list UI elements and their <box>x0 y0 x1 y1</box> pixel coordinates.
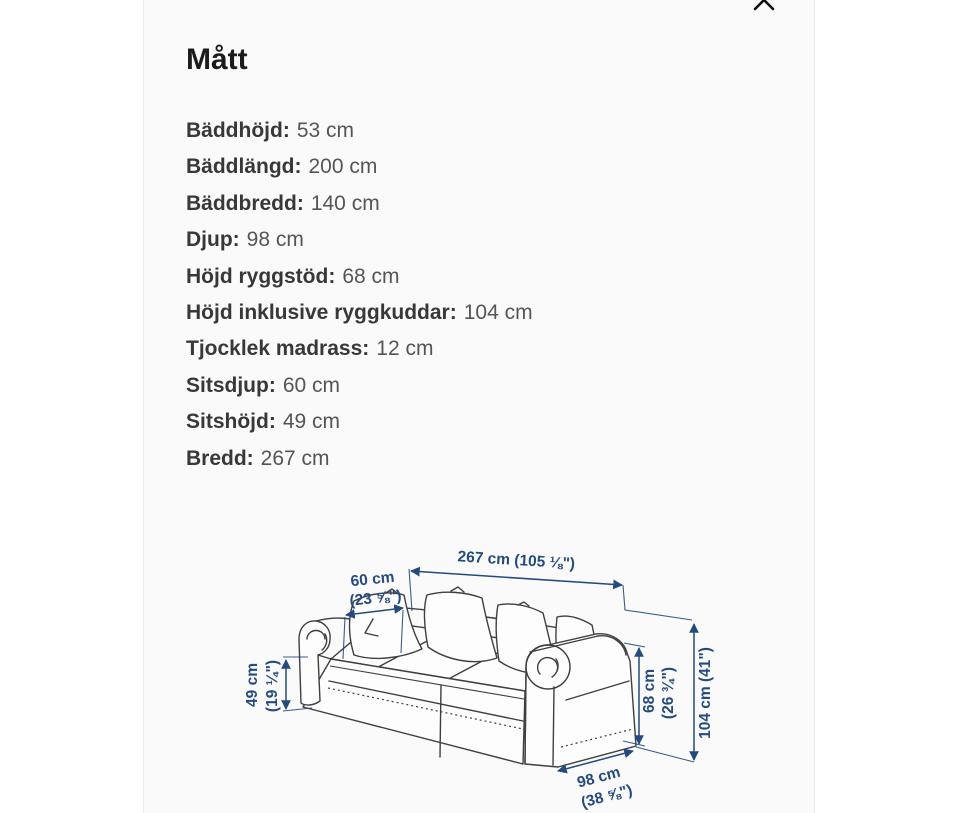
measurement-value: 200 cm <box>309 155 378 178</box>
measurement-row: Bäddhöjd:53 cm <box>186 113 746 149</box>
measurement-label: Bäddlängd: <box>186 155 302 178</box>
dim-total-width-label: 267 cm (105 ⅛") <box>457 548 575 572</box>
close-icon <box>748 0 780 16</box>
measurement-row: Sitsdjup:60 cm <box>186 368 746 404</box>
measurement-row: Höjd ryggstöd:68 cm <box>186 259 746 295</box>
measurement-label: Höjd ryggstöd: <box>186 265 335 288</box>
measurement-value: 49 cm <box>283 410 340 433</box>
dim-total-height-label: 104 cm (41") <box>697 647 714 739</box>
measurement-value: 68 cm <box>342 265 399 288</box>
measurement-label: Sitsdjup: <box>186 374 276 397</box>
measurement-value: 60 cm <box>283 374 340 397</box>
measurement-row: Höjd inklusive ryggkuddar:104 cm <box>186 295 746 331</box>
dim-arm-height-cm-label: 68 cm <box>641 669 658 713</box>
dim-seat-height-in-label: (19 ¼") <box>264 660 281 712</box>
measurement-list: Bäddhöjd:53 cm Bäddlängd:200 cm Bäddbred… <box>186 113 746 477</box>
measurement-label: Höjd inklusive ryggkuddar: <box>186 301 457 324</box>
dim-seat-height-cm-label: 49 cm <box>244 663 261 707</box>
measurement-value: 140 cm <box>311 192 380 215</box>
measurement-row: Bäddbredd:140 cm <box>186 186 746 222</box>
measurements-modal: Mått Bäddhöjd:53 cm Bäddlängd:200 cm Bäd… <box>143 0 815 813</box>
measurement-value: 267 cm <box>261 447 330 470</box>
measurement-row: Djup:98 cm <box>186 222 746 258</box>
measurement-label: Bredd: <box>186 447 254 470</box>
measurement-label: Djup: <box>186 228 240 251</box>
close-button[interactable] <box>748 0 780 16</box>
sofa-dimension-diagram: 267 cm (105 ⅛") 60 cm (23 ⅝") 49 cm (19 … <box>236 535 736 813</box>
dim-arm-height-in-label: (26 ¾") <box>660 667 677 719</box>
measurement-row: Bäddlängd:200 cm <box>186 149 746 185</box>
dim-seat-depth-cm-label: 60 cm <box>350 569 395 591</box>
measurement-value: 53 cm <box>297 119 354 142</box>
page-title: Mått <box>186 44 248 76</box>
measurement-value: 104 cm <box>464 301 533 324</box>
measurement-row: Sitshöjd:49 cm <box>186 404 746 440</box>
measurement-label: Tjocklek madrass: <box>186 337 369 360</box>
measurement-label: Bäddhöjd: <box>186 119 290 142</box>
measurement-value: 98 cm <box>247 228 304 251</box>
measurement-value: 12 cm <box>376 337 433 360</box>
measurement-label: Sitshöjd: <box>186 410 276 433</box>
measurement-label: Bäddbredd: <box>186 192 304 215</box>
measurement-row: Tjocklek madrass:12 cm <box>186 331 746 367</box>
measurement-row: Bredd:267 cm <box>186 441 746 477</box>
